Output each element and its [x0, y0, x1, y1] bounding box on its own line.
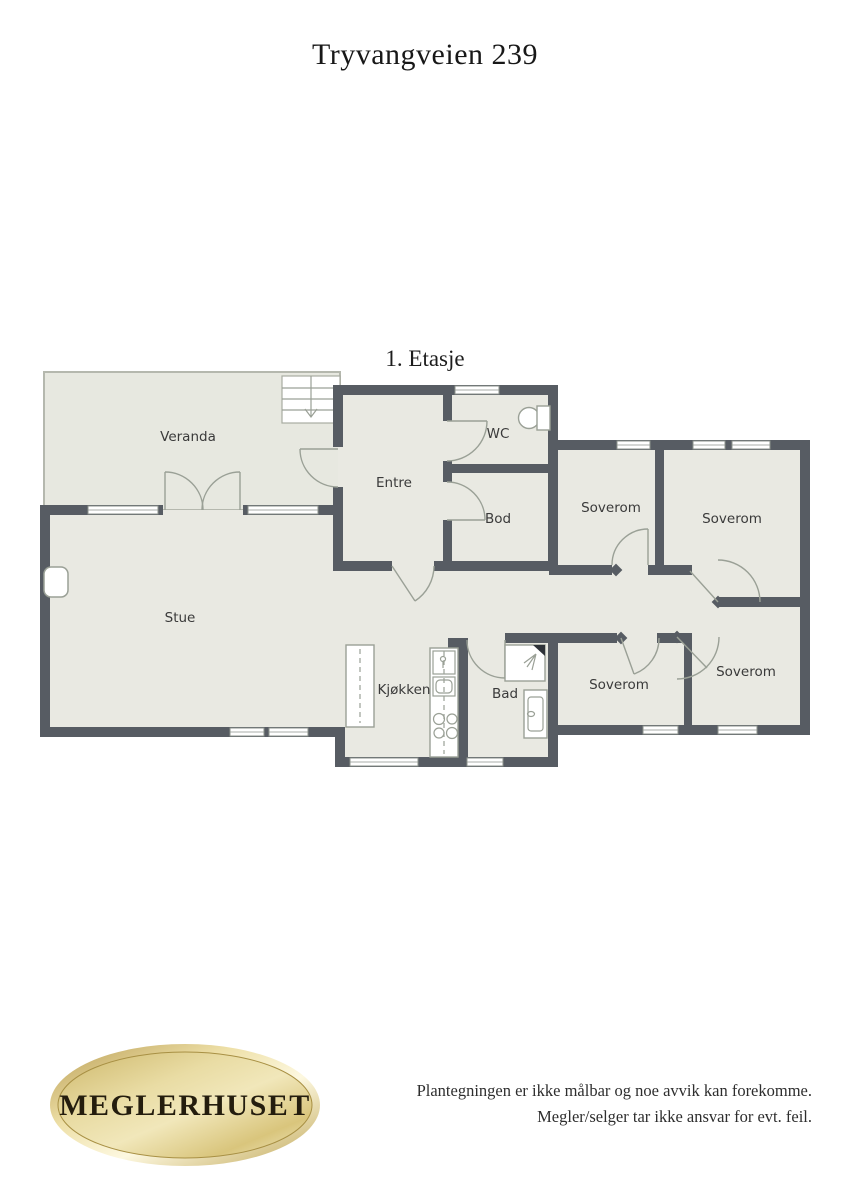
disclaimer: Plantegningen er ikke målbar og noe avvi…	[417, 1078, 812, 1130]
room-label-soverom-1: Soverom	[581, 500, 641, 516]
window	[693, 441, 725, 449]
window	[718, 726, 757, 734]
room-label-soverom-4: Soverom	[716, 664, 776, 680]
floorplan-page: Tryvangveien 239 1. Etasje	[0, 0, 850, 1202]
window	[230, 728, 264, 736]
room-label-entre: Entre	[376, 475, 412, 491]
floorplan-drawing: Veranda Entre WC Bod Soverom Soverom Stu…	[0, 0, 850, 1202]
window	[617, 441, 650, 449]
logo-text: MEGLERHUSET	[59, 1089, 311, 1122]
kitchen-island	[346, 645, 374, 727]
room-label-stue: Stue	[165, 610, 196, 626]
washing-machine-icon	[524, 690, 547, 738]
meglerhuset-logo-icon: MEGLERHUSET	[48, 1042, 322, 1170]
room-label-bod: Bod	[485, 511, 511, 527]
shower-icon	[505, 645, 545, 681]
window	[467, 758, 503, 766]
room-label-wc: WC	[487, 426, 510, 442]
window	[248, 506, 318, 514]
broker-logo: MEGLERHUSET	[48, 1042, 322, 1175]
room-label-soverom-3: Soverom	[589, 677, 649, 693]
stairs-icon	[282, 376, 340, 423]
disclaimer-line-2: Megler/selger tar ikke ansvar for evt. f…	[417, 1104, 812, 1130]
window	[455, 386, 499, 394]
disclaimer-line-1: Plantegningen er ikke målbar og noe avvi…	[417, 1078, 812, 1104]
window	[732, 441, 770, 449]
room-label-soverom-2: Soverom	[702, 511, 762, 527]
room-label-veranda: Veranda	[160, 429, 216, 445]
kitchen-counter	[430, 648, 458, 757]
window	[269, 728, 308, 736]
room-label-kjokken: Kjøkken	[378, 682, 431, 698]
fireplace-icon	[44, 567, 68, 597]
window	[643, 726, 678, 734]
window	[350, 758, 418, 766]
room-label-bad: Bad	[492, 686, 518, 702]
window	[88, 506, 158, 514]
toilet-icon	[519, 406, 551, 430]
